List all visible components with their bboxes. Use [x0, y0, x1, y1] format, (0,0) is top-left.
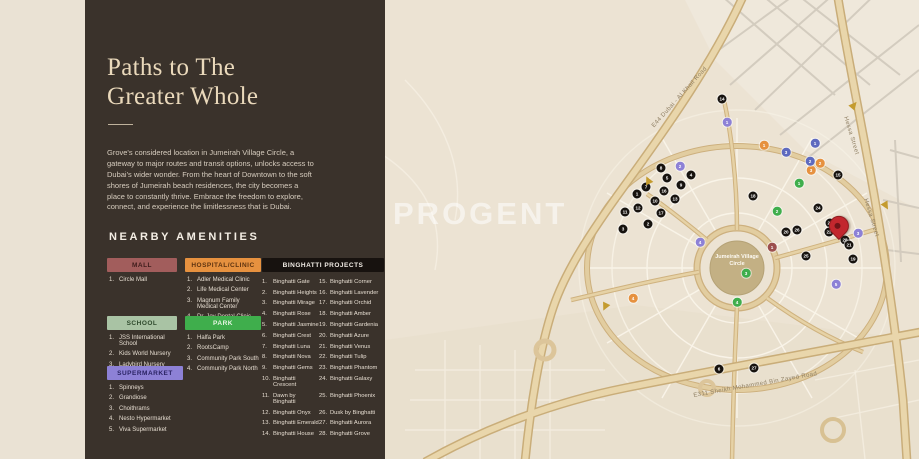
binghatti-projects-list: 1.Binghatti Gate15.Binghatti Corner2.Bin… — [262, 274, 384, 437]
amenity-item: 3.Magnum Family Medical Center — [185, 298, 261, 310]
nearby-amenities-heading: NEARBY AMENITIES — [109, 231, 259, 243]
project-marker: 10 — [651, 197, 660, 206]
project-marker: 25 — [802, 252, 811, 261]
supermarket-marker: 3 — [854, 229, 863, 238]
page-title: Paths to The Greater Whole — [107, 53, 258, 111]
info-panel: Paths to The Greater Whole Grove's consi… — [85, 0, 385, 459]
binghatti-projects-category: BINGHATTI PROJECTS 1.Binghatti Gate15.Bi… — [262, 258, 384, 437]
project-marker: 6 — [715, 365, 724, 374]
project-item: 18.Binghatti Amber — [319, 311, 384, 317]
project-item: 4.Binghatti Rose — [262, 311, 319, 317]
project-item: 5.Binghatti Jasmine — [262, 322, 319, 328]
amenity-item: 1.JSS International School — [107, 335, 177, 347]
project-marker: 1 — [633, 190, 642, 199]
project-marker: 20 — [782, 228, 791, 237]
page-title-line2: Greater Whole — [107, 82, 258, 111]
project-marker: 18 — [749, 192, 758, 201]
location-map: PROGENT E44 Dubai - Al Khail Road Hessa … — [385, 0, 919, 459]
project-item: 1.Binghatti Gate — [262, 279, 319, 285]
title-divider — [108, 124, 133, 125]
binghatti-projects-header: BINGHATTI PROJECTS — [262, 258, 384, 272]
project-item: 23.Binghatti Phantom — [319, 365, 384, 371]
park-marker: 1 — [795, 179, 804, 188]
school-marker: 3 — [782, 148, 791, 157]
brochure-page: Paths to The Greater Whole Grove's consi… — [0, 0, 919, 459]
supermarket-marker: 5 — [832, 280, 841, 289]
hospital-list: 1.Adler Medical Clinic2.Life Medical Cen… — [185, 277, 261, 321]
amenity-item: 1.Spinneys — [107, 385, 183, 391]
project-marker: 15 — [834, 171, 843, 180]
project-item: 16.Binghatti Lavender — [319, 290, 384, 296]
supermarket-marker: 2 — [676, 162, 685, 171]
hospital-header: HOSPITAL/CLINIC — [185, 258, 261, 272]
hospital-marker: 4 — [629, 294, 638, 303]
school-category: SCHOOL 1.JSS International School2.Kids … — [107, 316, 177, 368]
project-item: 6.Binghatti Crest — [262, 333, 319, 339]
amenity-item: 1.Adler Medical Clinic — [185, 277, 261, 283]
project-marker: 26 — [793, 226, 802, 235]
hospital-category: HOSPITAL/CLINIC 1.Adler Medical Clinic2.… — [185, 258, 261, 320]
amenity-item: 5.Viva Supermarket — [107, 427, 183, 433]
project-item: 8.Binghatti Nova — [262, 354, 319, 360]
mall-list: 1.Circle Mall — [107, 277, 177, 283]
hospital-marker: 1 — [760, 141, 769, 150]
project-item: 20.Binghatti Azure — [319, 333, 384, 339]
supermarket-header: SUPERMARKET — [107, 366, 183, 380]
project-marker: 19 — [849, 255, 858, 264]
project-item: 7.Binghatti Luna — [262, 344, 319, 350]
amenity-item: 4.Nesto Hypermarket — [107, 416, 183, 422]
project-item: 15.Binghatti Corner — [319, 279, 384, 285]
project-marker: 17 — [657, 209, 666, 218]
project-marker: 5 — [663, 174, 672, 183]
school-marker: 2 — [806, 157, 815, 166]
mall-category: MALL 1.Circle Mall — [107, 258, 177, 283]
supermarket-marker: 1 — [723, 118, 732, 127]
park-marker: 2 — [773, 207, 782, 216]
project-marker: 16 — [660, 187, 669, 196]
amenity-item: 2.Life Medical Center — [185, 287, 261, 293]
project-item: 9.Binghatti Gems — [262, 365, 319, 371]
amenity-item: 1.Halfa Park — [185, 335, 261, 341]
jvc-center-label: Jumeirah Village Circle — [714, 254, 760, 268]
project-item: 27.Binghatti Aurora — [319, 420, 384, 426]
project-marker: 3 — [619, 225, 628, 234]
page-title-line1: Paths to The — [107, 53, 258, 82]
amenity-item: 3.Choithrams — [107, 406, 183, 412]
project-item: 12.Binghatti Onyx — [262, 410, 319, 416]
supermarket-category: SUPERMARKET 1.Spinneys2.Grandiose3.Choit… — [107, 366, 183, 433]
project-marker: 12 — [634, 204, 643, 213]
project-marker: 4 — [687, 171, 696, 180]
project-item: 17.Binghatti Orchid — [319, 300, 384, 306]
supermarket-list: 1.Spinneys2.Grandiose3.Choithrams4.Nesto… — [107, 385, 183, 433]
project-marker: 11 — [621, 208, 630, 217]
project-marker: 9 — [677, 181, 686, 190]
amenity-item: 4.Community Park North — [185, 366, 261, 372]
project-item: 10.Binghatti Crescent — [262, 376, 319, 388]
project-item: 13.Binghatti Emerald — [262, 420, 319, 426]
park-marker: 3 — [742, 269, 751, 278]
school-marker: 1 — [811, 139, 820, 148]
project-item: 14.Binghatti House — [262, 431, 319, 437]
project-item: 24.Binghatti Galaxy — [319, 376, 384, 388]
project-marker: 13 — [671, 195, 680, 204]
project-marker: 14 — [718, 95, 727, 104]
project-item: 21.Binghatti Venus — [319, 344, 384, 350]
supermarket-marker: 4 — [696, 238, 705, 247]
project-item: 3.Binghatti Mirage — [262, 300, 319, 306]
project-marker: 27 — [750, 364, 759, 373]
park-category: PARK 1.Halfa Park2.RootsCamp3.Community … — [185, 316, 261, 372]
project-marker: 21 — [845, 241, 854, 250]
project-item: 26.Dusk by Binghatti — [319, 410, 384, 416]
project-item: 28.Binghatti Grove — [319, 431, 384, 437]
park-marker: 4 — [733, 298, 742, 307]
project-item: 25.Binghatti Phoenix — [319, 393, 384, 405]
amenity-item: 2.Grandiose — [107, 395, 183, 401]
project-marker: 24 — [814, 204, 823, 213]
project-marker: 8 — [657, 164, 666, 173]
park-header: PARK — [185, 316, 261, 330]
intro-paragraph: Grove's considered location in Jumeirah … — [107, 148, 317, 213]
mall-header: MALL — [107, 258, 177, 272]
project-item: 2.Binghatti Heights — [262, 290, 319, 296]
hospital-marker: 2 — [816, 159, 825, 168]
project-item: 22.Binghatti Tulip — [319, 354, 384, 360]
amenity-item: 2.RootsCamp — [185, 345, 261, 351]
school-header: SCHOOL — [107, 316, 177, 330]
mall-marker: 1 — [768, 243, 777, 252]
project-item: 11.Dawn by Binghatti — [262, 393, 319, 405]
park-list: 1.Halfa Park2.RootsCamp3.Community Park … — [185, 335, 261, 373]
hospital-marker: 3 — [807, 166, 816, 175]
amenity-item: 3.Community Park South — [185, 356, 261, 362]
progent-watermark: PROGENT — [393, 196, 567, 232]
project-item: 19.Binghatti Gardenia — [319, 322, 384, 328]
school-list: 1.JSS International School2.Kids World N… — [107, 335, 177, 368]
amenity-item: 1.Circle Mall — [107, 277, 177, 283]
project-marker: 2 — [644, 220, 653, 229]
amenity-item: 2.Kids World Nursery — [107, 351, 177, 357]
